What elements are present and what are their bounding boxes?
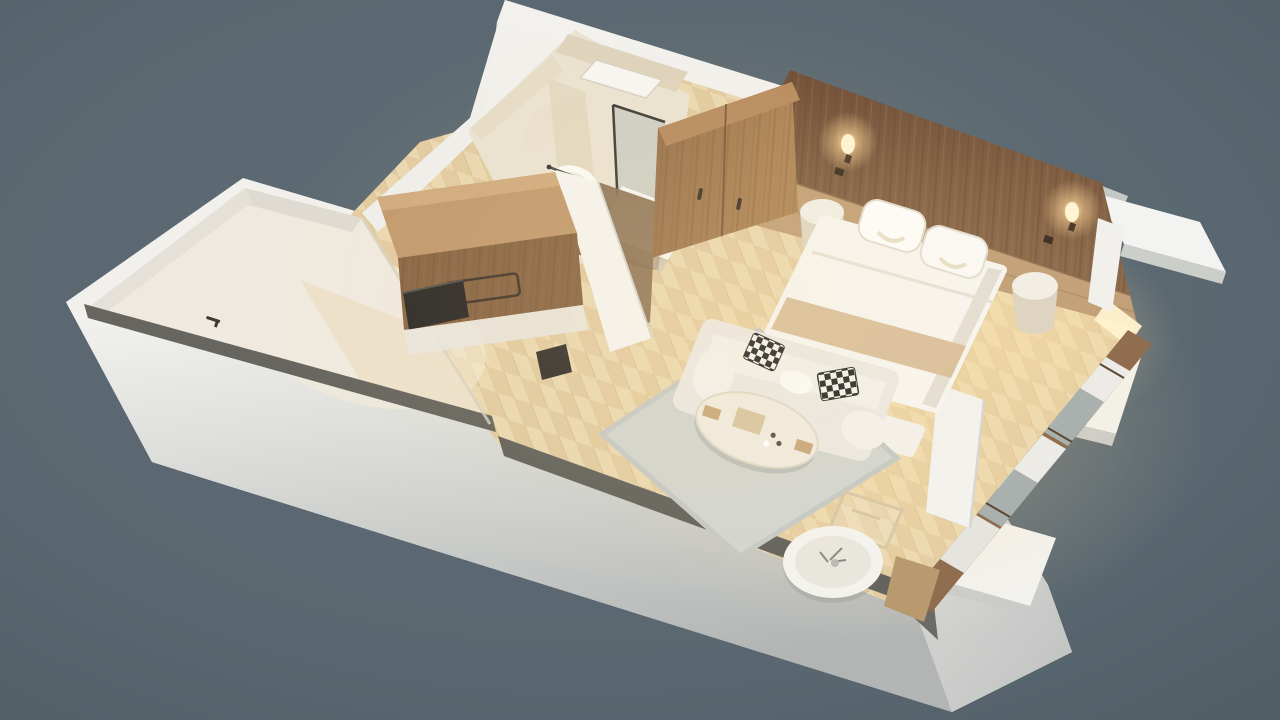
ambient-glow — [270, 0, 1130, 600]
floorplan-render: Isometric 3D cutaway floor plan of a stu… — [0, 0, 1280, 720]
scene-canvas — [0, 0, 1280, 720]
